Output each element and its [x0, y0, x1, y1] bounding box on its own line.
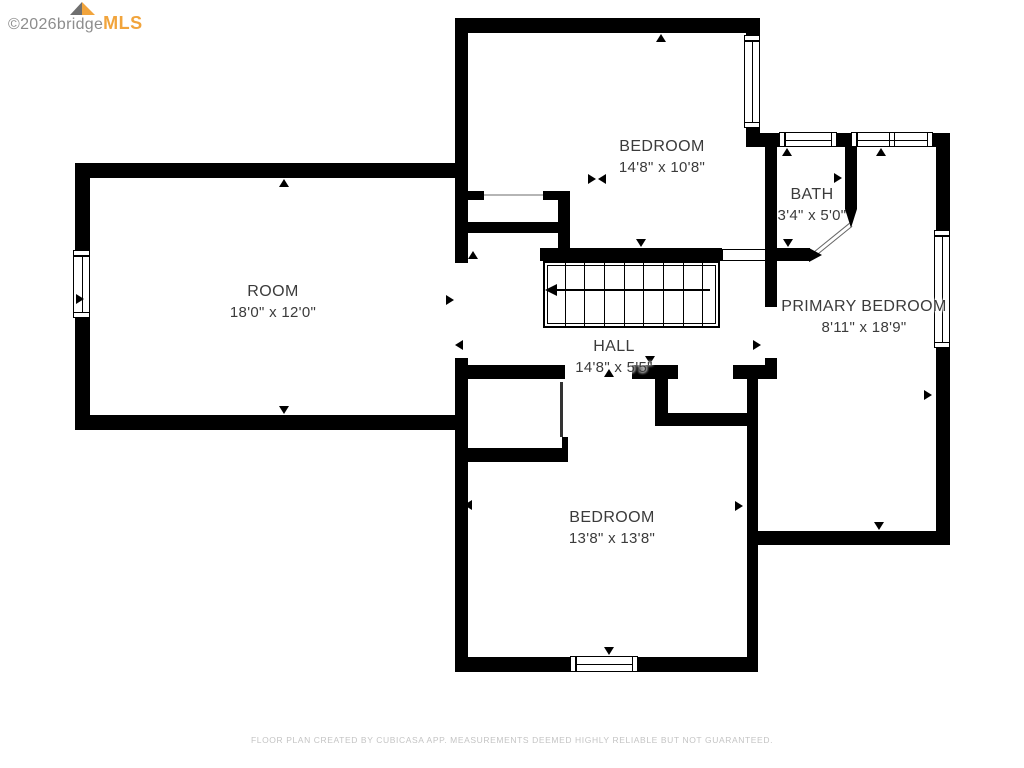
opening-marker-icon: [464, 500, 472, 510]
window-frame-line: [889, 133, 891, 146]
logo-copyright: ©2026: [8, 16, 57, 33]
stair-tread: [565, 263, 566, 326]
room-name: BATH: [778, 184, 847, 205]
wall: [455, 18, 760, 33]
thin-wall-line: [484, 194, 543, 196]
staircase-icon: [543, 261, 720, 328]
opening-marker-icon: [753, 340, 761, 350]
logo-name-orange: MLS: [103, 13, 143, 33]
logo-name-gray: bridge: [57, 16, 103, 33]
wall-arrow-icon: [809, 248, 822, 262]
wall: [765, 248, 810, 261]
stair-railing: [722, 249, 766, 261]
opening-marker-icon: [748, 392, 756, 402]
opening-marker-icon: [656, 34, 666, 42]
room-dimensions: 18'0" x 12'0": [230, 302, 316, 323]
wall: [655, 413, 758, 426]
room-name: HALL: [575, 336, 653, 357]
opening-marker-icon: [457, 172, 465, 182]
thin-wall-line: [560, 382, 563, 437]
opening-marker-icon: [735, 501, 743, 511]
opening-marker-icon: [598, 174, 606, 184]
window-frame-line: [857, 140, 927, 141]
wall: [562, 437, 568, 448]
room-name: BEDROOM: [569, 507, 655, 528]
window-frame-line: [785, 140, 831, 141]
wall: [458, 191, 484, 200]
opening-marker-icon: [782, 148, 792, 156]
wall: [75, 415, 468, 430]
window-frame-line: [752, 41, 753, 122]
stair-tread: [702, 263, 703, 326]
wall: [845, 147, 857, 209]
room-dimensions: 3'4" x 5'0": [778, 205, 847, 226]
window-icon: [779, 132, 837, 147]
wall: [455, 358, 468, 672]
opening-marker-icon: [604, 647, 614, 655]
stair-tread: [663, 263, 664, 326]
wall: [455, 222, 570, 233]
opening-marker-icon: [636, 239, 646, 247]
disclaimer-text: FLOOR PLAN CREATED BY CUBICASA APP. MEAS…: [0, 735, 1024, 745]
stair-tread: [584, 263, 585, 326]
room-dimensions: 14'8" x 5'5": [575, 357, 653, 378]
window-icon: [570, 656, 638, 672]
room-label-bedroom-bottom: BEDROOM13'8" x 13'8": [569, 507, 655, 549]
window-icon: [744, 35, 760, 128]
room-name: BEDROOM: [619, 136, 705, 157]
window-frame-line: [894, 133, 896, 146]
window-icon: [851, 132, 933, 147]
window-icon: [73, 250, 90, 318]
wall: [540, 248, 722, 261]
opening-marker-icon: [446, 295, 454, 305]
room-label-room: ROOM18'0" x 12'0": [230, 281, 316, 323]
opening-marker-icon: [588, 174, 596, 184]
opening-marker-icon: [455, 340, 463, 350]
room-dimensions: 8'11" x 18'9": [781, 317, 946, 338]
opening-marker-icon: [76, 294, 84, 304]
opening-marker-icon: [874, 522, 884, 530]
staircase-inner-border: [547, 265, 716, 324]
stair-direction-arrow: [557, 289, 710, 291]
room-label-primary-bedroom: PRIMARY BEDROOM8'11" x 18'9": [781, 296, 946, 338]
opening-marker-icon: [783, 239, 793, 247]
wall: [75, 163, 463, 178]
floorplan-page: ©2026bridgeMLS BEDROOM14'8" x 10'8"BATH3…: [0, 0, 1024, 768]
wall: [765, 358, 777, 367]
stair-tread: [624, 263, 625, 326]
room-name: ROOM: [230, 281, 316, 302]
stair-tread: [643, 263, 644, 326]
wall: [455, 448, 568, 462]
room-name: PRIMARY BEDROOM: [781, 296, 946, 317]
stair-direction-arrowhead-icon: [545, 284, 557, 296]
opening-marker-icon: [766, 173, 774, 183]
wall: [455, 365, 565, 379]
opening-marker-icon: [876, 148, 886, 156]
opening-marker-icon: [924, 390, 932, 400]
window-frame-line: [576, 664, 632, 665]
logo-text: ©2026bridgeMLS: [8, 13, 143, 34]
wall: [765, 147, 777, 307]
wall: [558, 191, 570, 248]
room-label-bath: BATH3'4" x 5'0": [778, 184, 847, 226]
opening-marker-icon: [834, 173, 842, 183]
room-dimensions: 13'8" x 13'8": [569, 528, 655, 549]
opening-marker-icon: [279, 406, 289, 414]
room-label-hall: HALL14'8" x 5'5": [575, 336, 653, 378]
opening-marker-icon: [468, 251, 478, 259]
wall: [747, 531, 950, 545]
opening-marker-icon: [279, 179, 289, 187]
room-dimensions: 14'8" x 10'8": [619, 157, 705, 178]
stair-tread: [604, 263, 605, 326]
wall: [543, 191, 558, 200]
stair-tread: [683, 263, 684, 326]
room-label-bedroom-top: BEDROOM14'8" x 10'8": [619, 136, 705, 178]
